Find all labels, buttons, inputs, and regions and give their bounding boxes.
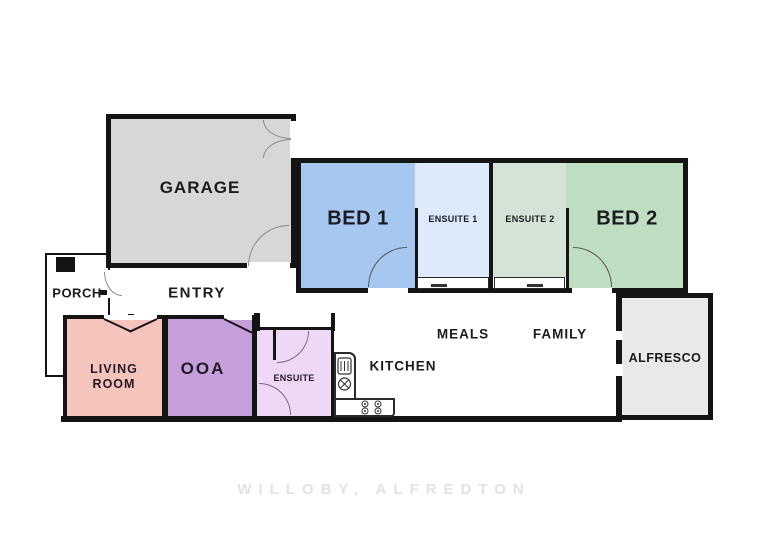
label-bed1: BED 1 [327, 208, 388, 231]
label-entry: ENTRY [168, 285, 226, 302]
label-porch: PORCH [52, 286, 101, 301]
label-ooa: OOA [181, 359, 226, 379]
door-opening [104, 315, 157, 320]
ensuite1-sink [431, 284, 447, 287]
label-garage: GARAGE [160, 178, 241, 198]
label-family: FAMILY [533, 327, 587, 342]
label-ensuite: ENSUITE [273, 373, 314, 383]
label-ensuite1: ENSUITE 1 [428, 214, 477, 224]
door-opening [572, 288, 612, 294]
ensuite2-vanity [494, 277, 565, 289]
sink-icon [337, 357, 353, 395]
label-ensuite2: ENSUITE 2 [505, 214, 554, 224]
wall [489, 163, 493, 288]
wall-family-right [616, 293, 622, 422]
sliding-door-opening [616, 364, 623, 376]
sliding-door-opening [616, 331, 623, 340]
wall [415, 208, 418, 288]
label-kitchen: KITCHEN [370, 359, 437, 374]
label-alfresco: ALFRESCO [629, 351, 702, 365]
wall [331, 313, 335, 331]
label-bed2: BED 2 [596, 208, 657, 231]
ensuite2-sink [527, 284, 543, 287]
stove-icon [357, 400, 387, 415]
wall [273, 330, 276, 360]
label-living: LIVING ROOM [78, 362, 150, 392]
wall [566, 208, 569, 288]
floor-plan: GARAGE BED 1 ENSUITE 1 ENSUITE 2 BED 2 P… [0, 0, 768, 543]
door-opening [368, 288, 408, 294]
porch-pillar [56, 257, 75, 272]
wall [254, 313, 260, 331]
label-meals: MEALS [437, 327, 489, 342]
door-opening [290, 121, 297, 158]
plan-title: WILLOBY, ALFREDTON [0, 481, 768, 498]
ensuite1-vanity [417, 277, 489, 289]
